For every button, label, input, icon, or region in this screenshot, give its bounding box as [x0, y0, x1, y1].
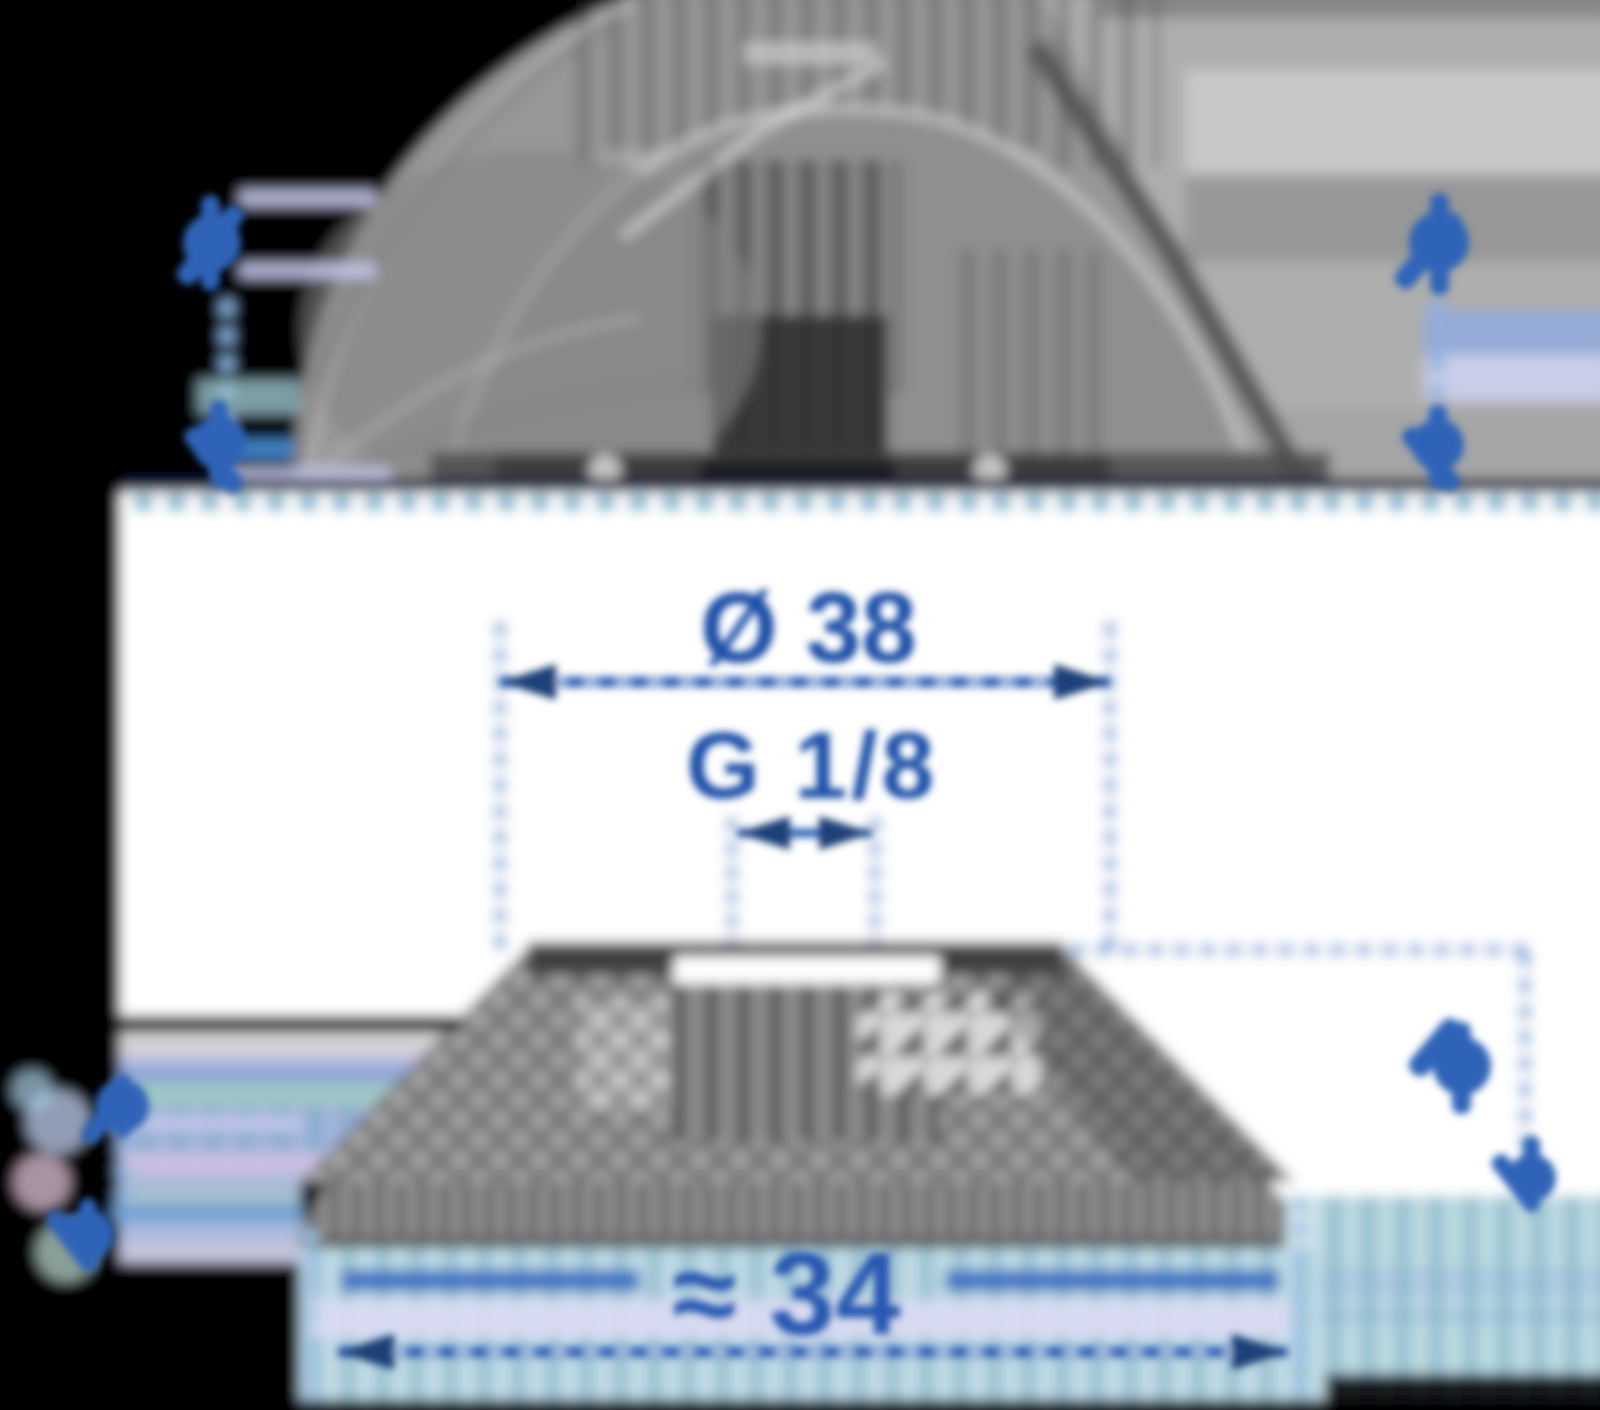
svg-text:≈ 34: ≈ 34 [672, 1228, 901, 1360]
svg-text:Ø 38: Ø 38 [700, 572, 917, 684]
svg-text:G 1/8: G 1/8 [686, 713, 938, 819]
